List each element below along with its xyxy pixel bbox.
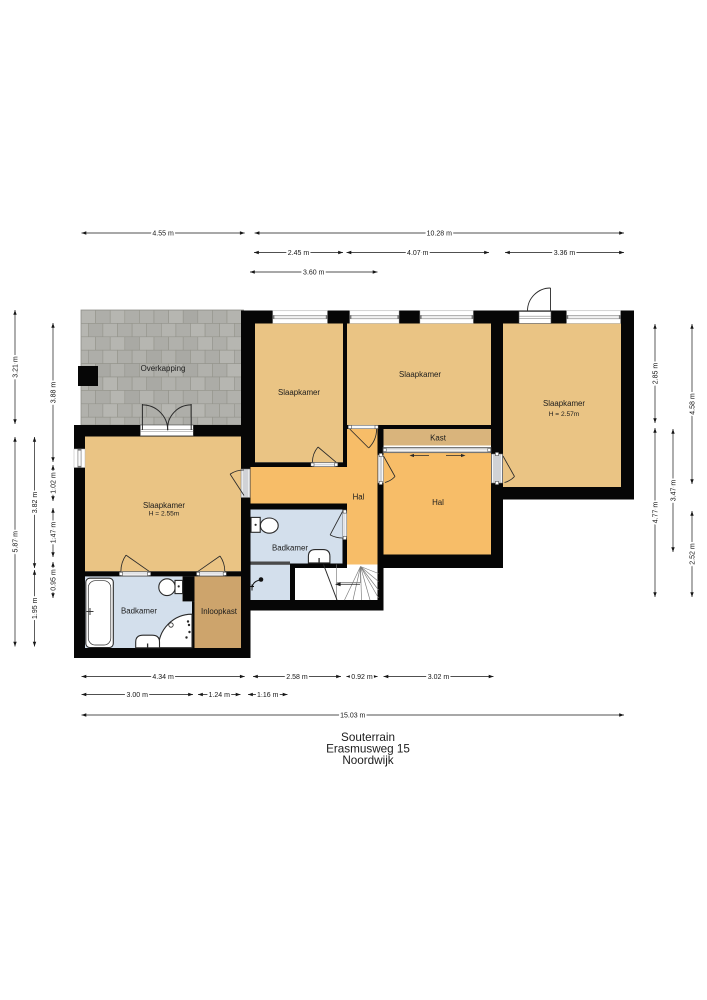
svg-text:3.47 m: 3.47 m xyxy=(670,480,677,502)
svg-text:1.24 m: 1.24 m xyxy=(209,692,231,699)
svg-text:5.87 m: 5.87 m xyxy=(12,531,19,553)
svg-text:0.95 m: 0.95 m xyxy=(50,569,57,591)
svg-text:1.47 m: 1.47 m xyxy=(50,522,57,544)
svg-text:Noordwijk: Noordwijk xyxy=(342,754,393,767)
svg-text:H = 2.57m: H = 2.57m xyxy=(549,411,580,418)
svg-text:Slaapkamer: Slaapkamer xyxy=(143,501,185,510)
svg-text:1.02 m: 1.02 m xyxy=(50,472,57,494)
svg-text:Kast: Kast xyxy=(430,434,447,443)
svg-text:3.36 m: 3.36 m xyxy=(554,250,576,257)
svg-text:3.60 m: 3.60 m xyxy=(303,269,325,276)
svg-text:3.02 m: 3.02 m xyxy=(428,674,450,681)
svg-text:Inloopkast: Inloopkast xyxy=(201,607,238,616)
svg-text:4.07 m: 4.07 m xyxy=(407,250,429,257)
svg-text:Slaapkamer: Slaapkamer xyxy=(543,399,585,408)
svg-text:Badkamer: Badkamer xyxy=(272,544,308,553)
svg-text:3.88 m: 3.88 m xyxy=(50,382,57,404)
svg-text:Hal: Hal xyxy=(353,493,365,502)
svg-text:4.34 m: 4.34 m xyxy=(152,674,174,681)
svg-text:Overkapping: Overkapping xyxy=(141,364,186,373)
svg-text:Slaapkamer: Slaapkamer xyxy=(399,370,441,379)
svg-text:2.58 m: 2.58 m xyxy=(286,674,308,681)
svg-text:2.45 m: 2.45 m xyxy=(288,250,310,257)
svg-text:Hal: Hal xyxy=(432,498,444,507)
svg-text:2.85 m: 2.85 m xyxy=(652,363,659,385)
svg-text:4.58 m: 4.58 m xyxy=(689,393,696,415)
svg-text:H = 2.55m: H = 2.55m xyxy=(149,511,180,518)
svg-text:3.00 m: 3.00 m xyxy=(127,692,149,699)
svg-text:4.55 m: 4.55 m xyxy=(152,230,174,237)
svg-text:Slaapkamer: Slaapkamer xyxy=(278,388,320,397)
svg-text:1.95 m: 1.95 m xyxy=(32,597,39,619)
svg-text:1.16 m: 1.16 m xyxy=(257,692,279,699)
svg-text:3.21 m: 3.21 m xyxy=(12,356,19,378)
svg-text:15.03 m: 15.03 m xyxy=(340,712,365,719)
svg-text:Badkamer: Badkamer xyxy=(121,607,157,616)
svg-text:4.77 m: 4.77 m xyxy=(652,502,659,524)
svg-text:10.28 m: 10.28 m xyxy=(427,230,452,237)
svg-text:0.92 m: 0.92 m xyxy=(351,674,373,681)
svg-text:2.52 m: 2.52 m xyxy=(689,543,696,565)
svg-text:3.82 m: 3.82 m xyxy=(32,492,39,514)
